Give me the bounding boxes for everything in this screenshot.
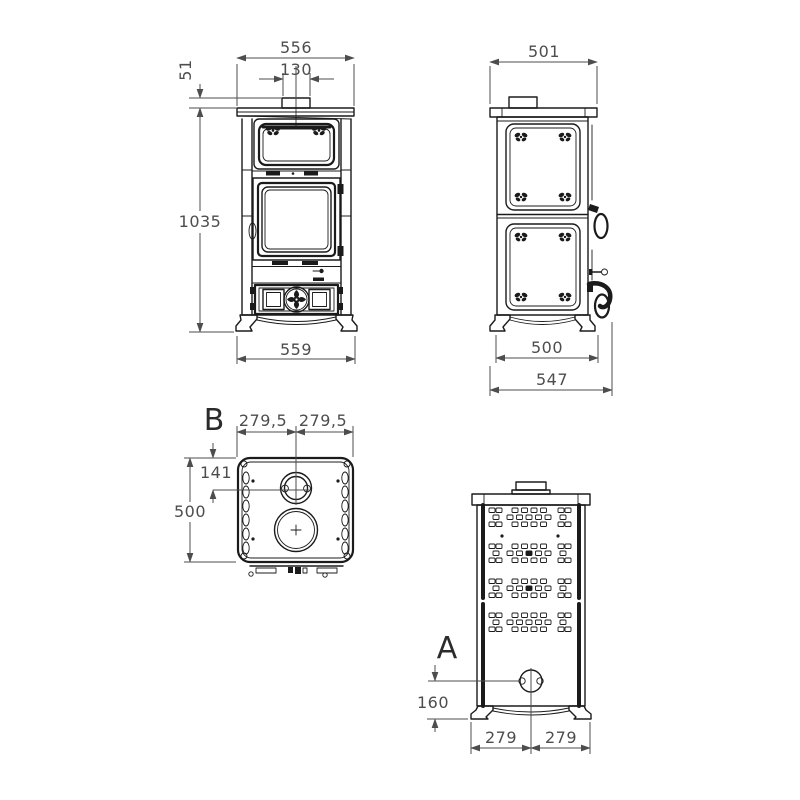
top-hot-plate [275,509,318,552]
panel-ornament-icon [558,292,572,302]
dim-side-total-depth: 547 [536,370,568,389]
side-top-plate [490,108,597,121]
side-door-handle-lower [587,283,610,318]
top-front-edge-detail [249,566,343,577]
side-flue-stub [509,97,537,108]
rear-top-plate [472,494,590,505]
dim-rear-half-right: 279 [545,728,577,747]
rear-view: A [417,482,591,754]
panel-ornament-icon [558,232,572,242]
front-fire-door [249,178,344,265]
dim-front-top-width: 556 [280,38,312,57]
panel-ornament-icon [558,132,572,142]
panel-ornament-icon [558,192,572,202]
front-vent-strip [252,171,341,176]
rear-vent-slots [489,508,571,632]
side-legs [490,315,595,331]
front-oven-door [254,119,339,169]
door-hinge [338,246,344,256]
dim-top-half-left: 279,5 [239,411,287,430]
panel-ornament-icon [514,132,528,142]
front-legs [236,315,357,331]
dim-side-top-depth: 501 [528,42,560,61]
air-control-knob [319,269,323,273]
dim-rear-inlet-height: 160 [417,693,449,712]
side-dimensions: 501 500 547 [490,42,612,396]
rosette-damper-icon [284,287,309,312]
dim-front-height: 1035 [179,212,222,231]
side-upper-panel [506,124,580,210]
dim-front-flue-width: 130 [280,60,312,79]
dim-front-base-width: 559 [280,340,312,359]
side-door-handle-upper [588,204,608,238]
dim-rear-half-left: 279 [485,728,517,747]
dim-front-flue-height: 51 [176,59,195,80]
dim-side-base-depth: 500 [531,338,563,357]
front-view: 556 130 51 1035 559 [176,38,357,364]
section-label-a: A [437,631,458,666]
front-control-strip [252,267,341,284]
front-ash-door [250,285,343,314]
stove-drawing-svg: 556 130 51 1035 559 [0,0,800,800]
panel-ornament-icon [514,192,528,202]
side-body [497,117,592,315]
dim-top-half-right: 279,5 [299,411,347,430]
top-view: B [172,403,353,577]
technical-drawing-page: 556 130 51 1035 559 [0,0,800,800]
rear-air-inlet [519,668,543,694]
door-hinge [338,184,344,194]
panel-ornament-icon [514,292,528,302]
rear-flue-stub [512,482,550,494]
section-label-b: B [204,403,225,438]
side-air-pin [589,269,608,275]
side-view: 501 500 547 [490,42,612,396]
top-dimensions: 279,5 279,5 141 500 [172,411,353,562]
dim-top-flue-offset: 141 [200,463,232,482]
panel-ornament-icon [514,232,528,242]
dim-top-depth: 500 [174,502,206,521]
side-lower-panel [506,224,580,310]
